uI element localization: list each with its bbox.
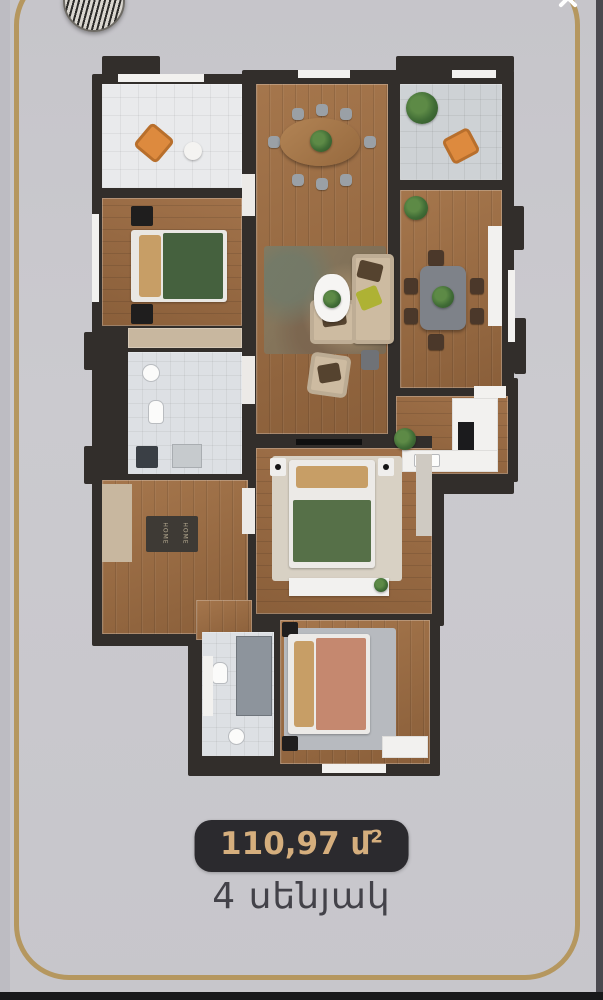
family-chair (404, 308, 418, 324)
nightstand (282, 736, 298, 751)
dining-chair (292, 174, 304, 186)
area-badge: 110,97 մ2 (194, 820, 409, 872)
table-plant (310, 130, 332, 152)
story-page: HOME HOME 110,97 մ2 4 սենյակ (0, 0, 603, 1000)
nightstand (131, 206, 153, 226)
wall-pilaster (84, 332, 94, 370)
balcony-door (322, 764, 386, 773)
bed-1-blanket (163, 233, 223, 299)
family-table-plant (432, 286, 454, 308)
bed-3 (288, 634, 370, 734)
window (92, 214, 99, 302)
armchair-pillow (317, 362, 342, 384)
dining-chair (316, 178, 328, 190)
window (508, 270, 515, 342)
family-chair (470, 278, 484, 294)
area-superscript: 2 (370, 827, 383, 848)
bathroom-2-shower (236, 636, 272, 716)
bathroom-1-toilet (148, 400, 164, 424)
nightstand (378, 458, 394, 476)
fridge (474, 386, 506, 398)
area-value: 110,97 (220, 826, 340, 862)
dining-chair (268, 136, 280, 148)
bathroom-1-shower (172, 444, 202, 468)
bed-1 (131, 230, 227, 302)
bathroom-2-sink (228, 728, 245, 745)
coffee-table-plant (323, 290, 341, 308)
armchair (306, 351, 351, 398)
door-leaf (242, 488, 255, 534)
nightstand (270, 458, 286, 476)
washing-machine (136, 446, 158, 468)
balcony-plant (406, 92, 438, 124)
dining-chair (340, 174, 352, 186)
bed-3-pillows (294, 641, 314, 727)
bedroom-3-closet (382, 736, 428, 758)
area-unit: մ (340, 826, 371, 862)
window (452, 70, 496, 78)
floor-plan: HOME HOME (84, 56, 526, 796)
doormat-text: HOME (162, 522, 169, 544)
family-plant (404, 196, 428, 220)
family-chair (428, 250, 444, 266)
family-chair (428, 334, 444, 350)
dining-chair (316, 104, 328, 116)
sideboard (488, 226, 502, 326)
dining-chair (364, 136, 376, 148)
door-leaf (242, 356, 255, 404)
dining-chair (292, 108, 304, 120)
room-balcony-left (102, 84, 242, 188)
side-table (361, 350, 379, 370)
doormat-text: HOME (182, 522, 189, 544)
lamp-icon (275, 464, 281, 470)
door-leaf (242, 174, 255, 216)
right-edge-strip (596, 0, 603, 1000)
family-chair (470, 308, 484, 324)
nightstand (131, 304, 153, 324)
wall-pilaster (512, 206, 524, 250)
kitchen-plant (394, 428, 416, 450)
bathroom-1-sink (142, 364, 160, 382)
hall-closet (102, 484, 132, 562)
family-chair (404, 278, 418, 294)
bottom-bar (0, 992, 603, 1000)
bathroom-2-door (203, 656, 213, 716)
kitchen-oven (458, 422, 474, 450)
wall-pilaster (514, 318, 526, 374)
dining-chair (340, 108, 352, 120)
tv (296, 439, 362, 445)
window (298, 70, 350, 78)
bed-2-blanket (293, 500, 371, 562)
bed-3-blanket (316, 638, 366, 730)
bedroom-2-wardrobe (416, 454, 432, 536)
bedroom-1-wardrobe (128, 328, 242, 348)
rooms-count-label: 4 սենյակ (0, 876, 603, 917)
left-edge-strip (0, 0, 10, 1000)
close-icon[interactable] (552, 0, 586, 12)
window (118, 74, 204, 82)
bed-2-pillows (296, 466, 368, 488)
bed-2 (289, 460, 375, 568)
bed-1-pillows (139, 235, 161, 297)
doormat: HOME HOME (146, 516, 198, 552)
bathroom-2-toilet (212, 662, 228, 684)
balcony-side-table (184, 142, 202, 160)
wall-pilaster (84, 446, 94, 484)
lamp-icon (383, 464, 389, 470)
dresser-plant (374, 578, 388, 592)
wall-stub (102, 56, 160, 76)
